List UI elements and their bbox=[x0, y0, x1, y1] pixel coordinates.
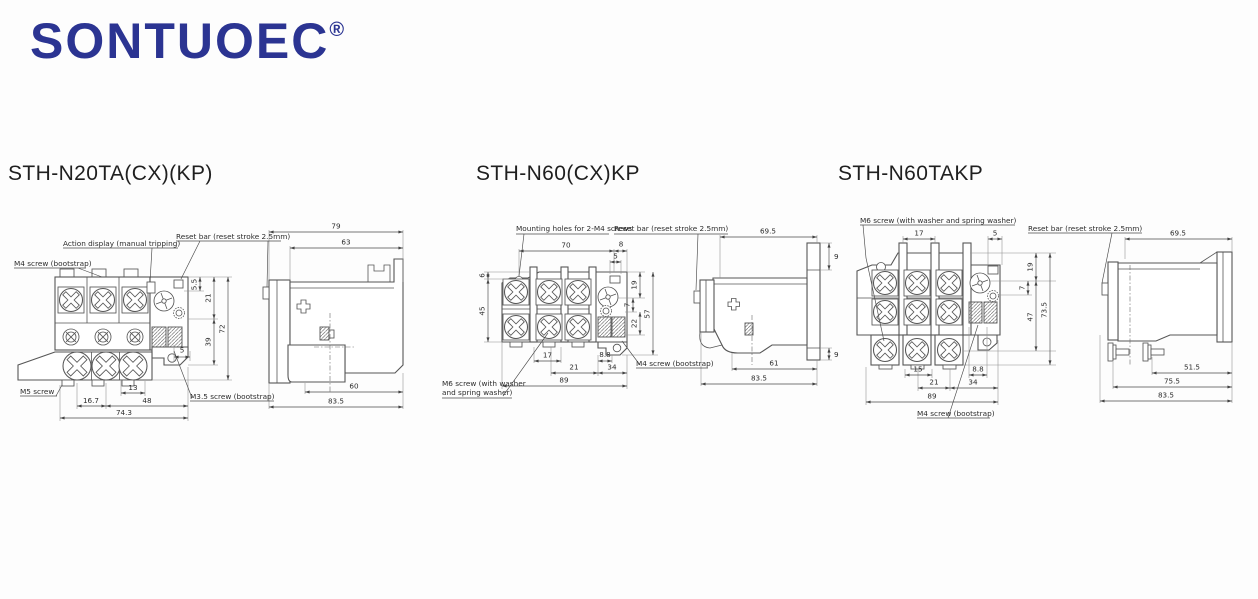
knurled-knob bbox=[988, 291, 999, 302]
dim-label: 39 bbox=[204, 337, 213, 347]
m6-phillips-screw bbox=[565, 279, 592, 306]
drawing2-title: STH-N60(CX)KP bbox=[476, 162, 640, 186]
drawing1-sth-n20ta: 5.5 21 39 72 5 13 16.7 48 74.3 79 bbox=[0, 195, 450, 465]
bootstrap-terminal bbox=[969, 302, 982, 323]
dim-label: 57 bbox=[643, 309, 652, 318]
dim-label: 45 bbox=[478, 306, 487, 315]
callout-m4-screw: M4 screw (bootstrap) bbox=[14, 259, 92, 268]
dim-label: 6 bbox=[478, 273, 487, 278]
foot-block bbox=[288, 345, 345, 382]
m6-side-screw bbox=[1143, 343, 1164, 361]
m6-phillips-screw bbox=[565, 314, 592, 341]
mounting-plate bbox=[807, 243, 820, 360]
dim-label: 5 bbox=[613, 252, 618, 261]
drawing3-title: STH-N60TAKP bbox=[838, 162, 983, 186]
bootstrap-terminal bbox=[152, 327, 166, 347]
dim-label: 63 bbox=[341, 238, 350, 247]
m6-phillips-screw bbox=[904, 270, 931, 297]
dim-label: 73.5 bbox=[1040, 302, 1049, 318]
dim-label: 47 bbox=[1026, 312, 1035, 321]
m6-phillips-screw bbox=[904, 299, 931, 326]
drawing1-side-view bbox=[263, 259, 403, 393]
knurled-knob bbox=[601, 306, 612, 317]
dim-label: 34 bbox=[968, 378, 978, 387]
reset-button bbox=[174, 280, 183, 288]
registered-trademark-icon: ® bbox=[329, 19, 344, 41]
top-clip bbox=[368, 265, 390, 282]
dim-label: 89 bbox=[927, 392, 937, 401]
mounting-hole bbox=[613, 344, 621, 352]
current-adjust-dial bbox=[598, 287, 618, 307]
dim-label: 83.5 bbox=[751, 374, 767, 383]
reset-button bbox=[988, 266, 998, 274]
dim-label: 69.5 bbox=[1170, 229, 1186, 238]
callout-m6-screw: M6 screw (with washer and spring washer) bbox=[860, 216, 1016, 225]
dim-label: 21 bbox=[929, 378, 938, 387]
dim-label: 34 bbox=[607, 363, 617, 372]
m6-phillips-screw bbox=[936, 270, 963, 297]
reset-bracket bbox=[700, 280, 714, 332]
phillips-screw bbox=[90, 287, 117, 314]
current-adjust-dial bbox=[970, 273, 990, 293]
dim-label: 21 bbox=[569, 363, 578, 372]
m6-phillips-screw bbox=[503, 314, 530, 341]
callout-m6-screw-line1: M6 screw (with washer bbox=[442, 379, 526, 388]
drawing2-side-view bbox=[694, 243, 820, 365]
dim-label: 19 bbox=[630, 280, 639, 290]
m6-phillips-screw bbox=[536, 279, 563, 306]
m6-phillips-screw bbox=[936, 299, 963, 326]
callout-m5-screw: M5 screw bbox=[20, 387, 54, 396]
dim-label: 13 bbox=[128, 383, 137, 392]
callout-m3-5-screw: M3.5 screw (bootstrap) bbox=[190, 392, 275, 401]
dim-label: 17 bbox=[914, 229, 923, 238]
phillips-screw bbox=[122, 287, 149, 314]
callout-m4-screw: M4 screw (bootstrap) bbox=[636, 359, 714, 368]
dim-label: 89 bbox=[559, 376, 569, 385]
bootstrap-terminal bbox=[168, 327, 182, 347]
mounting-bracket bbox=[269, 280, 290, 383]
reset-button bbox=[610, 276, 620, 283]
drawing3-front-view bbox=[857, 243, 1000, 369]
dim-label: 79 bbox=[331, 222, 341, 231]
mounting-plate bbox=[1217, 252, 1232, 342]
dim-label: 8.8 bbox=[972, 365, 984, 374]
brand-logo: SONTUOEC® bbox=[30, 16, 344, 66]
m6-phillips-screw bbox=[872, 270, 899, 297]
side-profile bbox=[1118, 263, 1217, 341]
reset-bracket bbox=[1108, 262, 1118, 340]
dim-label: 83.5 bbox=[1158, 391, 1174, 400]
dim-label: 74.3 bbox=[116, 408, 132, 417]
m6-phillips-screw bbox=[503, 279, 530, 306]
dim-label: 7 bbox=[623, 303, 632, 308]
callout-m6-screw-line2: and spring washer) bbox=[442, 388, 512, 397]
callout-reset-bar: Reset bar (reset stroke 2.5mm) bbox=[176, 232, 290, 241]
drawing1-front-view bbox=[18, 269, 188, 386]
dim-label: 61 bbox=[769, 359, 778, 368]
dim-label: 5 bbox=[180, 346, 185, 355]
callout-action-display: Action display (manual tripping) bbox=[63, 239, 180, 248]
dim-label: 17 bbox=[543, 351, 552, 360]
dim-label: 48 bbox=[142, 396, 152, 405]
drawing2-front-view bbox=[502, 267, 627, 355]
dim-label: 69.5 bbox=[760, 227, 776, 236]
dim-label: 7 bbox=[1018, 286, 1027, 291]
catalog-page: { "brand": {"name": "SONTUOEC", "mark": … bbox=[0, 0, 1258, 599]
bootstrap-terminal bbox=[612, 317, 625, 337]
dim-label: 16.7 bbox=[83, 396, 99, 405]
bootstrap-terminal bbox=[598, 317, 611, 337]
dim-label: 8 bbox=[619, 240, 624, 249]
dim-label: 5 bbox=[993, 229, 998, 238]
dim-label: 15 bbox=[913, 365, 922, 374]
callout-reset-bar: Reset bar (reset stroke 2.5mm) bbox=[614, 224, 728, 233]
action-display-flag bbox=[147, 282, 155, 293]
knurled-knob bbox=[174, 308, 185, 319]
reset-bar-nub bbox=[1102, 283, 1108, 295]
reset-bar-nub bbox=[694, 291, 700, 303]
dim-label: 51.5 bbox=[1184, 363, 1200, 372]
drawing3-sth-n60takp: 17 5 19 7 47 73.5 15 8.8 21 34 89 bbox=[830, 195, 1258, 485]
brand-name: SONTUOEC bbox=[30, 13, 329, 69]
mounting-hole bbox=[168, 354, 176, 362]
drawing1-title: STH-N20TA(CX)(KP) bbox=[8, 162, 213, 186]
dim-label: 75.5 bbox=[1164, 377, 1180, 386]
drawing2-sth-n60: 70 8 5 6 45 19 7 22 57 17 8.8 21 34 89 bbox=[440, 195, 860, 465]
reset-bar-nub bbox=[263, 287, 269, 299]
dim-label: 70 bbox=[561, 241, 571, 250]
dim-label: 72 bbox=[218, 324, 227, 333]
callout-m4-screw: M4 screw (bootstrap) bbox=[917, 409, 995, 418]
dim-label: 19 bbox=[1026, 262, 1035, 272]
dim-label: 60 bbox=[349, 382, 359, 391]
m6-phillips-screw bbox=[536, 314, 563, 341]
bootstrap-terminal bbox=[984, 302, 997, 323]
dim-label: 22 bbox=[630, 319, 639, 328]
drawing3-side-view bbox=[1102, 252, 1232, 365]
dim-label: 5.5 bbox=[190, 279, 199, 290]
phillips-screw bbox=[58, 287, 85, 314]
current-adjust-dial bbox=[154, 291, 174, 311]
callout-reset-bar: Reset bar (reset stroke 2.5mm) bbox=[1028, 224, 1142, 233]
dim-label: 83.5 bbox=[328, 397, 344, 406]
side-profile bbox=[713, 278, 807, 353]
dim-label: 8.8 bbox=[599, 350, 611, 359]
dim-label: 21 bbox=[204, 293, 213, 302]
m6-side-screw bbox=[1108, 343, 1129, 361]
